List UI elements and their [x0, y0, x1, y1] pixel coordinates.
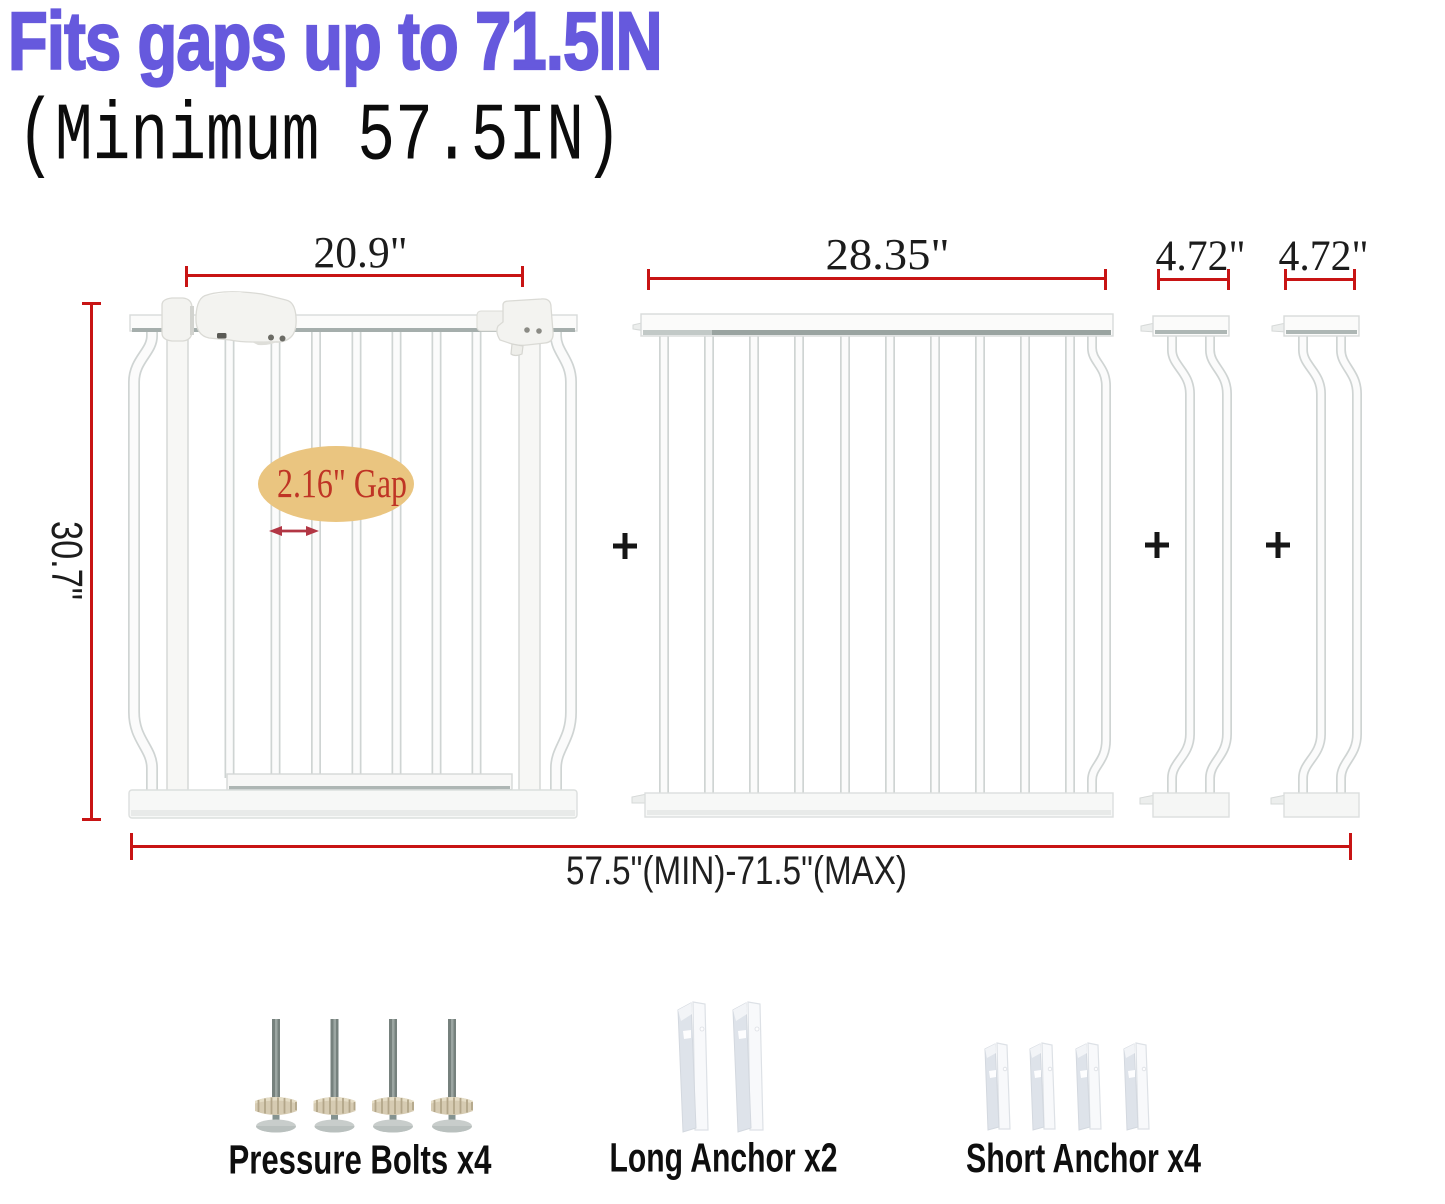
svg-text:57.5"(MIN)-71.5"(MAX): 57.5"(MIN)-71.5"(MAX): [566, 849, 907, 893]
svg-text:Short Anchor x4: Short Anchor x4: [966, 1135, 1201, 1181]
svg-text:30.7": 30.7": [42, 521, 91, 600]
svg-text:Pressure Bolts x4: Pressure Bolts x4: [229, 1137, 492, 1183]
svg-text:2.16" Gap: 2.16" Gap: [277, 460, 407, 506]
svg-text:4.72": 4.72": [1156, 233, 1246, 280]
svg-text:Long Anchor x2: Long Anchor x2: [610, 1135, 838, 1181]
svg-text:28.35": 28.35": [826, 230, 950, 279]
svg-text:20.9": 20.9": [314, 228, 408, 277]
